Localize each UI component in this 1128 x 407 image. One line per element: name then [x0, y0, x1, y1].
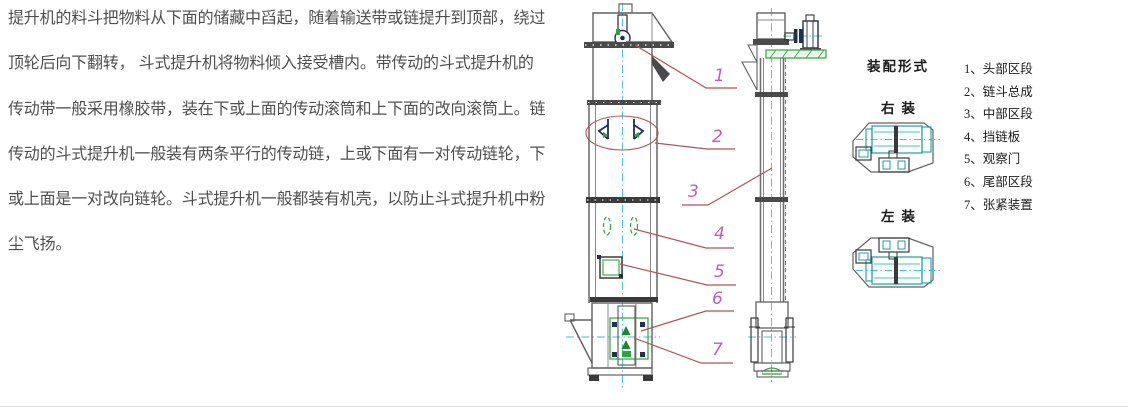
- description-line: 提升机的料斗把物料从下面的储藏中舀起，随着输送带或链提升到顶部，绕过: [8, 0, 556, 41]
- callout-4: 4: [714, 226, 725, 243]
- legend-item: 3、中部区段: [964, 103, 1033, 126]
- legend-item: 7、张紧装置: [964, 194, 1033, 217]
- right-mount-label: 右装: [868, 97, 928, 117]
- description-paragraph: 提升机的料斗把物料从下面的储藏中舀起，随着输送带或链提升到顶部，绕过 顶轮后向下…: [8, 0, 556, 268]
- bucket-elevator-document: 提升机的料斗把物料从下面的储藏中舀起，随着输送带或链提升到顶部，绕过 顶轮后向下…: [0, 0, 1128, 407]
- description-line: 或上面是一对改向链轮。斗式提升机一般都装有机壳，以防止斗式提升机中粉: [8, 177, 556, 222]
- legend-item: 4、挡链板: [964, 126, 1033, 149]
- legend-item: 2、链斗总成: [964, 81, 1033, 104]
- right-mount-view: [853, 123, 941, 172]
- description-line: 顶轮后向下翻转， 斗式提升机将物料倾入接受槽内。带传动的斗式提升机的: [8, 41, 556, 86]
- front-view: [565, 3, 674, 388]
- callout-5: 5: [714, 264, 725, 281]
- left-mount-view: [853, 238, 941, 287]
- callout-6: 6: [712, 291, 723, 308]
- side-view: [742, 8, 826, 382]
- assembly-form-title: 装配形式: [860, 55, 936, 75]
- legend-item: 1、头部区段: [964, 58, 1033, 81]
- description-line: 传动的斗式提升机一般装有两条平行的传动链，上或下面有一对传动链轮，下: [8, 132, 556, 177]
- callout-1: 1: [714, 68, 725, 85]
- callout-2: 2: [712, 129, 723, 146]
- callout-7: 7: [712, 342, 723, 359]
- callout-leader-lines: [620, 45, 772, 363]
- description-line: 传动带一般采用橡胶带，装在下或上面的传动滚筒和上下面的改向滚筒上。链: [8, 87, 556, 132]
- legend-item: 6、尾部区段: [964, 171, 1033, 194]
- parts-legend: 1、头部区段 2、链斗总成 3、中部区段 4、挡链板 5、观察门 6、尾部区段 …: [964, 58, 1033, 216]
- callout-3: 3: [688, 184, 699, 201]
- legend-item: 5、观察门: [964, 148, 1033, 171]
- description-line: 尘飞扬。: [8, 222, 556, 267]
- left-mount-label: 左装: [868, 205, 928, 225]
